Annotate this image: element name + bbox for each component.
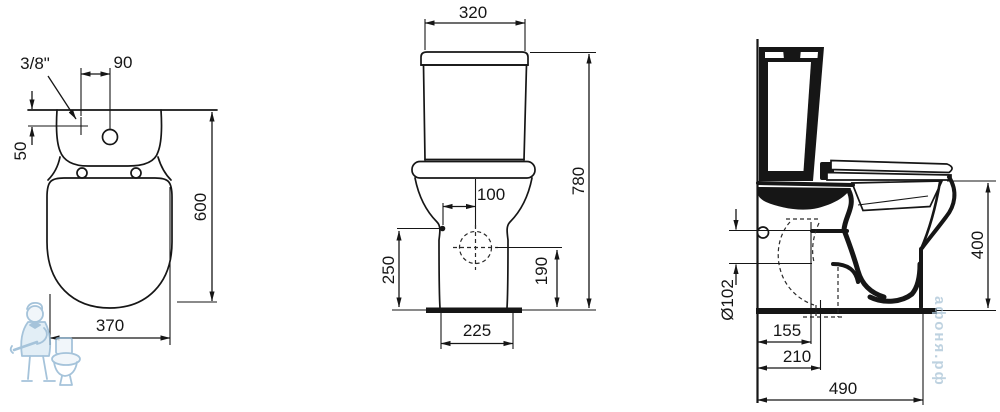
dim-label-50: 50 (11, 142, 30, 161)
dim-label-490: 490 (829, 379, 857, 398)
dim-label-400: 400 (968, 231, 987, 259)
supply-inlet (758, 227, 769, 238)
dashed-trap-right (813, 223, 819, 262)
dim-label-780: 780 (569, 167, 588, 195)
dim-pedestal-width-225: 225 (441, 313, 513, 349)
dim-cistern-width-320: 320 (425, 3, 525, 51)
front-view: 320 780 100 250 190 225 (379, 3, 596, 349)
lid-profile (831, 161, 952, 173)
seat-outline (47, 178, 172, 308)
technical-drawing-canvas: 3/8" 90 50 600 370 (0, 0, 1000, 412)
mascot-wrench-head (11, 346, 13, 353)
cistern-left (424, 65, 426, 160)
dim-length-600: 600 (177, 112, 217, 302)
dim-label-225: 225 (463, 321, 491, 340)
base-bar (756, 308, 937, 314)
brand-watermark: афоня.рф (931, 296, 948, 406)
flush-channel (758, 187, 851, 210)
lid-hole (103, 130, 118, 145)
mascot-toilet-seat (52, 353, 80, 365)
cistern-lid (421, 52, 528, 65)
dim-label-600: 600 (191, 193, 210, 221)
neck-right (158, 157, 171, 180)
dim-outlet-diameter: Ø102 (718, 209, 820, 321)
dim-label-155: 155 (773, 321, 801, 340)
seat-profile (827, 173, 951, 181)
bowl-right (507, 178, 532, 308)
dim-supply-height-250: 250 (379, 231, 399, 307)
dim-label-190: 190 (532, 257, 551, 285)
seat-edge (412, 162, 535, 179)
dim-label-90: 90 (114, 53, 133, 72)
hinge-right (131, 168, 141, 178)
side-view: Ø102 400 155 210 490 (718, 39, 996, 405)
cistern-interior (768, 62, 811, 171)
supply-point-dot (440, 226, 446, 232)
flush-button (783, 49, 801, 60)
dim-label-320: 320 (459, 3, 487, 22)
leader-line (48, 76, 76, 119)
cistern-outline (56, 110, 161, 166)
mascot-head (27, 306, 43, 322)
base-bar (426, 308, 522, 314)
mascot-toilet-tank (56, 338, 72, 354)
neck-left (48, 157, 60, 180)
dim-label-250: 250 (379, 256, 398, 284)
toilet-dimension-drawing: 3/8" 90 50 600 370 (0, 0, 1000, 412)
cistern-right (524, 65, 527, 160)
dim-outlet-height-190: 190 (496, 248, 562, 308)
mascot-legs (28, 356, 47, 379)
dim-label-100: 100 (477, 185, 505, 204)
dim-label-outlet-diameter: Ø102 (718, 279, 737, 321)
mascot-toilet-base (60, 376, 72, 385)
dim-label-210: 210 (783, 347, 811, 366)
dim-supply-offset-90: 90 (81, 53, 132, 129)
dim-outlet-offset-155: 155 (758, 222, 812, 344)
dim-label-370: 370 (96, 316, 124, 335)
hinge-left (77, 168, 87, 178)
rim-section (852, 181, 942, 211)
dim-supply-offset-100: 100 (397, 185, 505, 231)
bowl-left (415, 178, 440, 308)
dim-label-supply-thread: 3/8" (20, 54, 50, 73)
bowl-back-top (758, 183, 853, 185)
plumber-mascot-watermark (8, 293, 88, 408)
